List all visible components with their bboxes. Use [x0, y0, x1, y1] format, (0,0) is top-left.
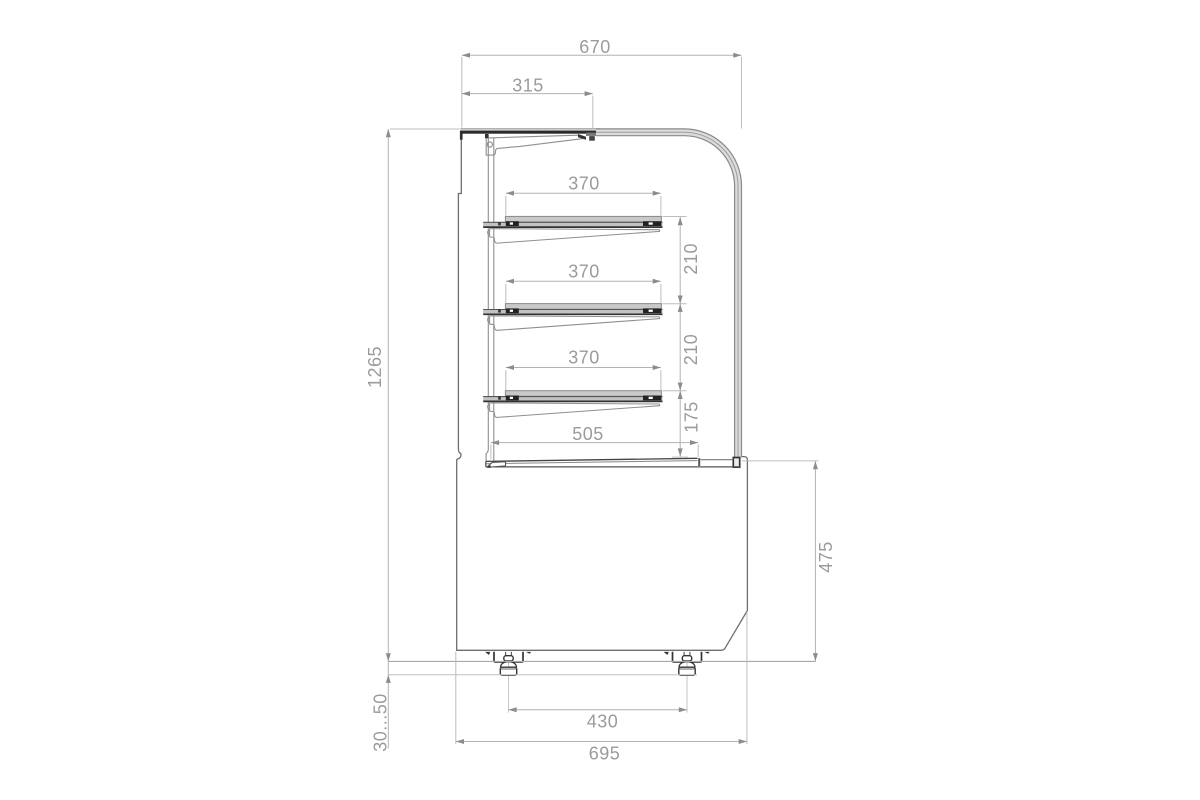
svg-text:315: 315 — [512, 75, 544, 95]
svg-text:210: 210 — [681, 334, 701, 366]
svg-text:475: 475 — [816, 541, 836, 573]
svg-text:370: 370 — [568, 348, 600, 368]
svg-text:370: 370 — [568, 173, 600, 193]
svg-text:430: 430 — [587, 712, 619, 732]
svg-text:175: 175 — [682, 401, 702, 433]
svg-text:370: 370 — [568, 261, 600, 281]
svg-text:505: 505 — [572, 424, 604, 444]
svg-text:210: 210 — [681, 243, 701, 275]
svg-text:1265: 1265 — [365, 346, 385, 388]
svg-text:695: 695 — [589, 744, 621, 764]
svg-text:30...50: 30...50 — [371, 693, 391, 752]
svg-text:670: 670 — [579, 37, 611, 57]
